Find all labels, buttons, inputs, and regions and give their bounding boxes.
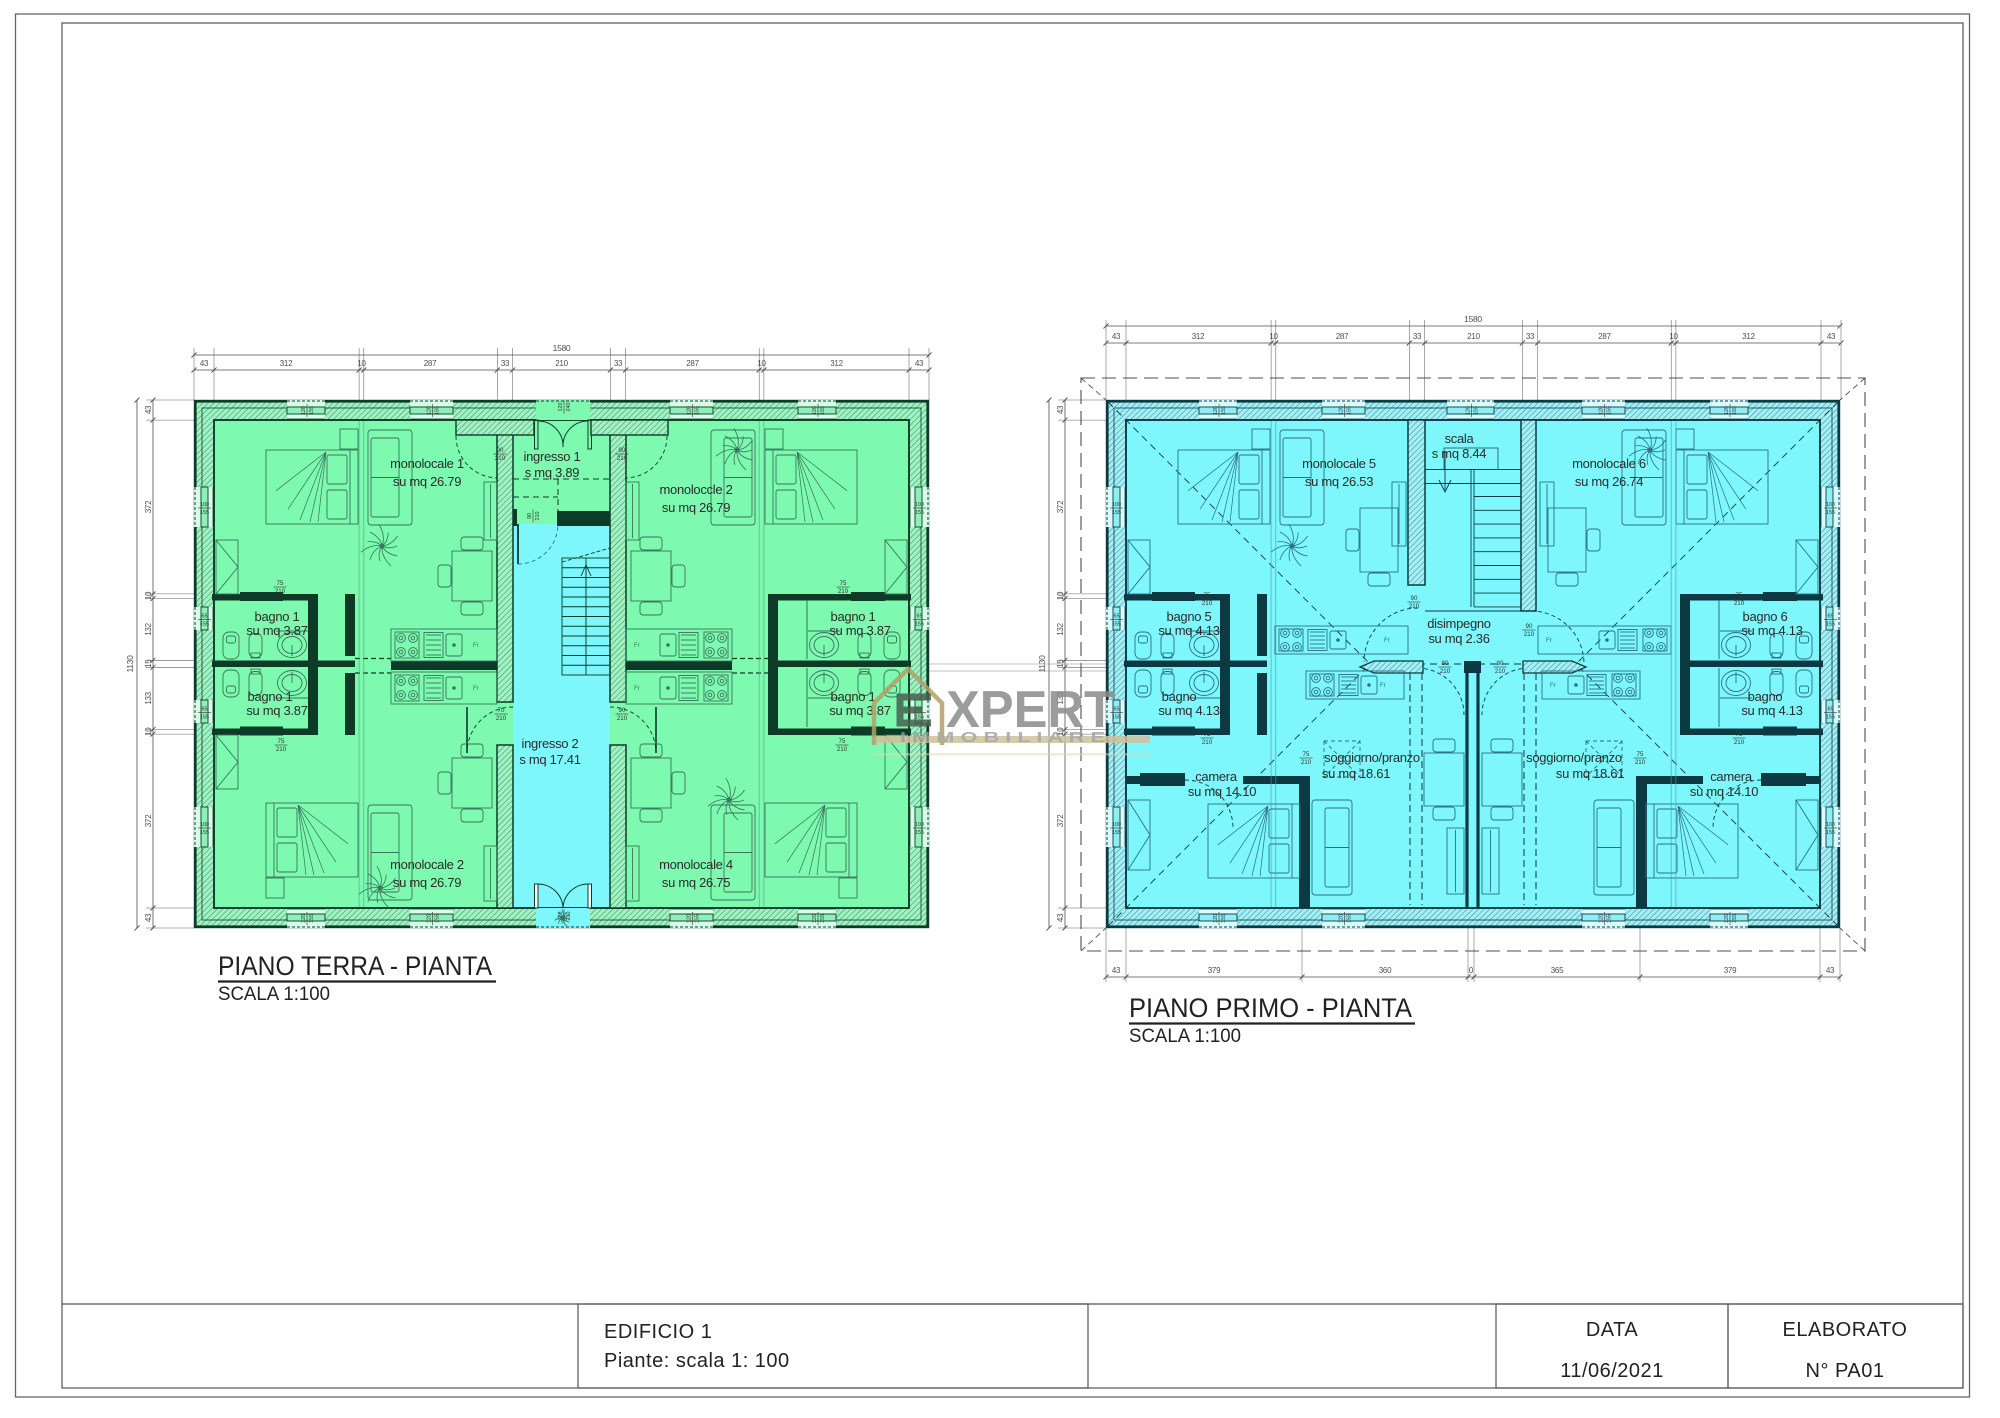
svg-text:su mq 14.10: su mq 14.10 <box>1690 784 1758 799</box>
svg-text:65: 65 <box>917 613 923 619</box>
svg-text:120: 120 <box>812 914 818 923</box>
svg-text:1580: 1580 <box>553 343 571 353</box>
svg-text:bagno 1: bagno 1 <box>255 609 300 624</box>
svg-text:75: 75 <box>277 580 284 587</box>
svg-text:210: 210 <box>617 715 628 722</box>
svg-text:10: 10 <box>757 359 766 368</box>
svg-text:210: 210 <box>1495 668 1506 675</box>
svg-text:120: 120 <box>426 406 432 415</box>
svg-text:75: 75 <box>1637 751 1644 758</box>
svg-text:155: 155 <box>1826 510 1835 516</box>
svg-text:monolocale 2: monolocale 2 <box>390 857 464 872</box>
svg-text:210: 210 <box>1202 739 1213 746</box>
svg-text:15: 15 <box>1056 659 1065 668</box>
svg-text:SCALA 1:100: SCALA 1:100 <box>1129 1026 1241 1047</box>
svg-text:312: 312 <box>1742 332 1755 341</box>
svg-text:120: 120 <box>1465 406 1471 415</box>
svg-text:Fr: Fr <box>1380 683 1386 689</box>
svg-text:287: 287 <box>1336 332 1349 341</box>
svg-text:11/06/2021: 11/06/2021 <box>1560 1360 1664 1382</box>
svg-text:155: 155 <box>200 510 209 516</box>
svg-text:su mq 2.36: su mq 2.36 <box>1428 631 1489 646</box>
svg-text:1130: 1130 <box>125 655 135 673</box>
svg-text:su mq 26.79: su mq 26.79 <box>393 474 461 489</box>
svg-text:su mq 26.79: su mq 26.79 <box>393 875 461 890</box>
svg-text:90: 90 <box>1526 623 1533 630</box>
svg-text:287: 287 <box>1598 332 1611 341</box>
svg-text:120: 120 <box>426 914 432 923</box>
svg-text:80: 80 <box>1497 660 1504 667</box>
svg-text:su mq 26.74: su mq 26.74 <box>1575 474 1643 489</box>
svg-text:155: 155 <box>200 622 209 628</box>
svg-text:155: 155 <box>435 406 441 415</box>
svg-text:133: 133 <box>144 691 153 704</box>
svg-text:Piante: scala 1: 100: Piante: scala 1: 100 <box>604 1350 790 1372</box>
svg-text:155: 155 <box>1347 914 1353 923</box>
svg-text:75: 75 <box>839 738 846 745</box>
svg-text:155: 155 <box>309 406 315 415</box>
svg-text:33: 33 <box>614 359 623 368</box>
svg-text:10: 10 <box>1269 332 1278 341</box>
svg-text:N° PA01: N° PA01 <box>1806 1360 1885 1382</box>
svg-text:155: 155 <box>1732 914 1738 923</box>
svg-text:155: 155 <box>1112 830 1121 836</box>
svg-text:90: 90 <box>527 513 533 519</box>
svg-text:75: 75 <box>1736 592 1743 599</box>
svg-text:210: 210 <box>1409 603 1420 610</box>
svg-text:43: 43 <box>1112 332 1121 341</box>
svg-text:100: 100 <box>200 822 209 828</box>
svg-text:monolocale 5: monolocale 5 <box>1302 456 1376 471</box>
svg-text:su mq 18.61: su mq 18.61 <box>1322 766 1390 781</box>
svg-text:75: 75 <box>1303 751 1310 758</box>
svg-text:210: 210 <box>1524 631 1535 638</box>
svg-text:100: 100 <box>1826 502 1835 508</box>
svg-text:155: 155 <box>915 622 924 628</box>
svg-text:ELABORATO: ELABORATO <box>1783 1319 1908 1341</box>
svg-text:210: 210 <box>555 359 568 368</box>
svg-text:210: 210 <box>1440 668 1451 675</box>
svg-text:su mq 3.87: su mq 3.87 <box>829 623 890 638</box>
svg-text:155: 155 <box>695 406 701 415</box>
svg-text:su mq 4.13: su mq 4.13 <box>1158 703 1219 718</box>
svg-text:210: 210 <box>1467 332 1480 341</box>
svg-text:EDIFICIO 1: EDIFICIO 1 <box>604 1321 712 1343</box>
svg-text:43: 43 <box>1827 332 1836 341</box>
svg-text:camera: camera <box>1710 769 1753 784</box>
svg-text:su mq 4.13: su mq 4.13 <box>1741 623 1802 638</box>
svg-text:75: 75 <box>1204 731 1211 738</box>
svg-text:155: 155 <box>1474 406 1480 415</box>
svg-text:10: 10 <box>144 591 153 600</box>
svg-text:100: 100 <box>1826 822 1835 828</box>
svg-text:43: 43 <box>1056 913 1065 922</box>
svg-text:disimpegno: disimpegno <box>1427 616 1491 631</box>
svg-text:ingresso 2: ingresso 2 <box>522 736 579 751</box>
svg-text:Fr: Fr <box>473 643 479 649</box>
svg-text:210: 210 <box>496 715 507 722</box>
svg-text:Fr: Fr <box>1546 638 1552 644</box>
svg-text:120: 120 <box>301 406 307 415</box>
svg-text:75: 75 <box>1204 592 1211 599</box>
svg-text:Fr: Fr <box>1550 683 1556 689</box>
svg-text:65: 65 <box>1828 613 1834 619</box>
svg-text:287: 287 <box>686 359 699 368</box>
svg-text:monolocale 6: monolocale 6 <box>1572 456 1646 471</box>
svg-text:90: 90 <box>619 707 626 714</box>
svg-text:155: 155 <box>1112 622 1121 628</box>
svg-text:100: 100 <box>915 502 924 508</box>
svg-text:su mq 3.87: su mq 3.87 <box>829 703 890 718</box>
svg-text:Fr: Fr <box>634 686 640 692</box>
svg-text:15: 15 <box>144 659 153 668</box>
svg-text:155: 155 <box>1732 406 1738 415</box>
svg-text:100: 100 <box>915 822 924 828</box>
svg-text:120: 120 <box>301 914 307 923</box>
svg-text:372: 372 <box>1056 814 1065 827</box>
svg-text:120: 120 <box>558 403 564 412</box>
svg-text:312: 312 <box>830 359 843 368</box>
svg-text:120: 120 <box>1338 914 1344 923</box>
svg-text:su mq 18.61: su mq 18.61 <box>1556 766 1624 781</box>
svg-text:312: 312 <box>280 359 293 368</box>
svg-text:210: 210 <box>617 455 628 462</box>
svg-text:240: 240 <box>566 403 572 412</box>
svg-text:155: 155 <box>1607 406 1613 415</box>
svg-text:372: 372 <box>144 500 153 513</box>
svg-text:155: 155 <box>1347 406 1353 415</box>
svg-text:379: 379 <box>1208 966 1221 975</box>
svg-text:43: 43 <box>144 405 153 414</box>
svg-text:312: 312 <box>1192 332 1205 341</box>
svg-text:155: 155 <box>1112 510 1121 516</box>
svg-text:su mq 3.87: su mq 3.87 <box>246 623 307 638</box>
svg-text:90: 90 <box>619 447 626 454</box>
svg-text:90: 90 <box>1411 595 1418 602</box>
svg-text:287: 287 <box>424 359 437 368</box>
svg-text:155: 155 <box>200 830 209 836</box>
svg-text:155: 155 <box>200 715 209 721</box>
svg-text:120: 120 <box>1598 406 1604 415</box>
svg-text:soggiorno/pranzo: soggiorno/pranzo <box>1526 750 1622 765</box>
svg-text:33: 33 <box>501 359 510 368</box>
svg-text:155: 155 <box>820 406 826 415</box>
svg-text:120: 120 <box>1724 406 1730 415</box>
svg-text:210: 210 <box>275 588 286 595</box>
svg-text:155: 155 <box>915 830 924 836</box>
svg-text:120: 120 <box>1598 914 1604 923</box>
svg-text:s mq 3.89: s mq 3.89 <box>525 465 579 480</box>
svg-text:210: 210 <box>1301 759 1312 766</box>
svg-text:210: 210 <box>535 512 541 521</box>
svg-text:monoloccle 2: monoloccle 2 <box>660 482 733 497</box>
svg-text:33: 33 <box>1526 332 1535 341</box>
svg-text:210: 210 <box>838 588 849 595</box>
svg-text:43: 43 <box>200 359 209 368</box>
svg-text:155: 155 <box>435 914 441 923</box>
svg-text:372: 372 <box>1056 500 1065 513</box>
svg-text:372: 372 <box>144 814 153 827</box>
svg-text:379: 379 <box>1724 966 1737 975</box>
svg-text:10: 10 <box>1056 591 1065 600</box>
svg-text:155: 155 <box>1221 406 1227 415</box>
svg-text:120: 120 <box>812 406 818 415</box>
svg-text:155: 155 <box>820 914 826 923</box>
svg-text:210: 210 <box>495 455 506 462</box>
svg-text:su mq 26.75: su mq 26.75 <box>662 875 730 890</box>
svg-text:bagno 6: bagno 6 <box>1743 609 1788 624</box>
svg-text:210: 210 <box>1734 600 1745 607</box>
svg-text:210: 210 <box>1635 759 1646 766</box>
svg-text:132: 132 <box>1056 622 1065 635</box>
svg-text:s mq 8.44: s mq 8.44 <box>1432 446 1486 461</box>
svg-text:155: 155 <box>1826 715 1835 721</box>
svg-text:120: 120 <box>686 914 692 923</box>
svg-text:bagno 1: bagno 1 <box>831 689 876 704</box>
svg-text:10: 10 <box>1669 332 1678 341</box>
svg-text:SCALA 1:100: SCALA 1:100 <box>218 984 330 1005</box>
svg-text:360: 360 <box>1379 966 1392 975</box>
svg-text:Fr: Fr <box>634 643 640 649</box>
svg-text:65: 65 <box>202 706 208 712</box>
svg-text:155: 155 <box>1221 914 1227 923</box>
svg-text:bagno: bagno <box>1162 689 1197 704</box>
svg-text:75: 75 <box>278 738 285 745</box>
svg-text:155: 155 <box>695 914 701 923</box>
svg-text:33: 33 <box>1413 332 1422 341</box>
svg-text:43: 43 <box>1056 405 1065 414</box>
svg-text:camera: camera <box>1195 769 1238 784</box>
svg-text:120: 120 <box>1213 914 1219 923</box>
svg-text:120: 120 <box>1213 406 1219 415</box>
svg-text:100: 100 <box>1112 822 1121 828</box>
svg-text:PIANO TERRA - PIANTA: PIANO TERRA - PIANTA <box>218 951 492 981</box>
svg-text:su mq 14.10: su mq 14.10 <box>1188 784 1256 799</box>
svg-text:65: 65 <box>1828 706 1834 712</box>
svg-text:75: 75 <box>1736 731 1743 738</box>
svg-text:155: 155 <box>915 510 924 516</box>
svg-text:155: 155 <box>1826 622 1835 628</box>
svg-text:0: 0 <box>1469 966 1474 975</box>
svg-text:su mq 4.13: su mq 4.13 <box>1741 703 1802 718</box>
svg-text:210: 210 <box>276 746 287 753</box>
svg-text:120: 120 <box>1724 914 1730 923</box>
svg-text:su mq 26.53: su mq 26.53 <box>1305 474 1373 489</box>
svg-text:365: 365 <box>1551 966 1564 975</box>
svg-text:su mq 3.87: su mq 3.87 <box>246 703 307 718</box>
svg-text:DATA: DATA <box>1586 1319 1639 1341</box>
svg-text:210: 210 <box>1202 600 1213 607</box>
svg-text:75: 75 <box>840 580 847 587</box>
svg-text:210: 210 <box>837 746 848 753</box>
svg-text:65: 65 <box>202 613 208 619</box>
svg-text:Fr: Fr <box>473 686 479 692</box>
svg-text:155: 155 <box>1607 914 1613 923</box>
svg-text:su mq 26.79: su mq 26.79 <box>662 500 730 515</box>
svg-text:70: 70 <box>498 707 505 714</box>
svg-text:PIANO PRIMO - PIANTA: PIANO PRIMO - PIANTA <box>1129 993 1412 1023</box>
svg-text:10: 10 <box>357 359 366 368</box>
svg-text:100: 100 <box>200 502 209 508</box>
svg-text:43: 43 <box>1826 966 1835 975</box>
svg-text:scala: scala <box>1445 431 1475 446</box>
svg-text:155: 155 <box>309 914 315 923</box>
svg-text:1580: 1580 <box>1464 314 1482 324</box>
svg-text:120: 120 <box>1338 406 1344 415</box>
svg-text:43: 43 <box>915 359 924 368</box>
svg-text:monolocale 4: monolocale 4 <box>659 857 733 872</box>
svg-text:100: 100 <box>1112 502 1121 508</box>
svg-text:soggiorno/pranzo: soggiorno/pranzo <box>1324 750 1420 765</box>
svg-text:bagno: bagno <box>1748 689 1783 704</box>
svg-text:65: 65 <box>1114 613 1120 619</box>
svg-text:43: 43 <box>144 913 153 922</box>
svg-text:I M M O B I L I A R E: I M M O B I L I A R E <box>900 730 1105 746</box>
svg-text:120: 120 <box>686 406 692 415</box>
svg-text:bagno 1: bagno 1 <box>248 689 293 704</box>
svg-text:bagno 1: bagno 1 <box>831 609 876 624</box>
svg-text:s mq 17.41: s mq 17.41 <box>519 752 580 767</box>
svg-text:43: 43 <box>1112 966 1121 975</box>
svg-text:Fr: Fr <box>1384 638 1390 644</box>
svg-text:210: 210 <box>1734 739 1745 746</box>
svg-text:10: 10 <box>144 727 153 736</box>
svg-text:90: 90 <box>497 447 504 454</box>
svg-text:bagno 5: bagno 5 <box>1167 609 1212 624</box>
svg-text:su mq 4.13: su mq 4.13 <box>1158 623 1219 638</box>
svg-text:ingresso 1: ingresso 1 <box>524 449 581 464</box>
svg-text:132: 132 <box>144 622 153 635</box>
svg-text:155: 155 <box>1826 830 1835 836</box>
svg-text:80: 80 <box>1442 660 1449 667</box>
svg-text:monolocale 1: monolocale 1 <box>390 456 464 471</box>
